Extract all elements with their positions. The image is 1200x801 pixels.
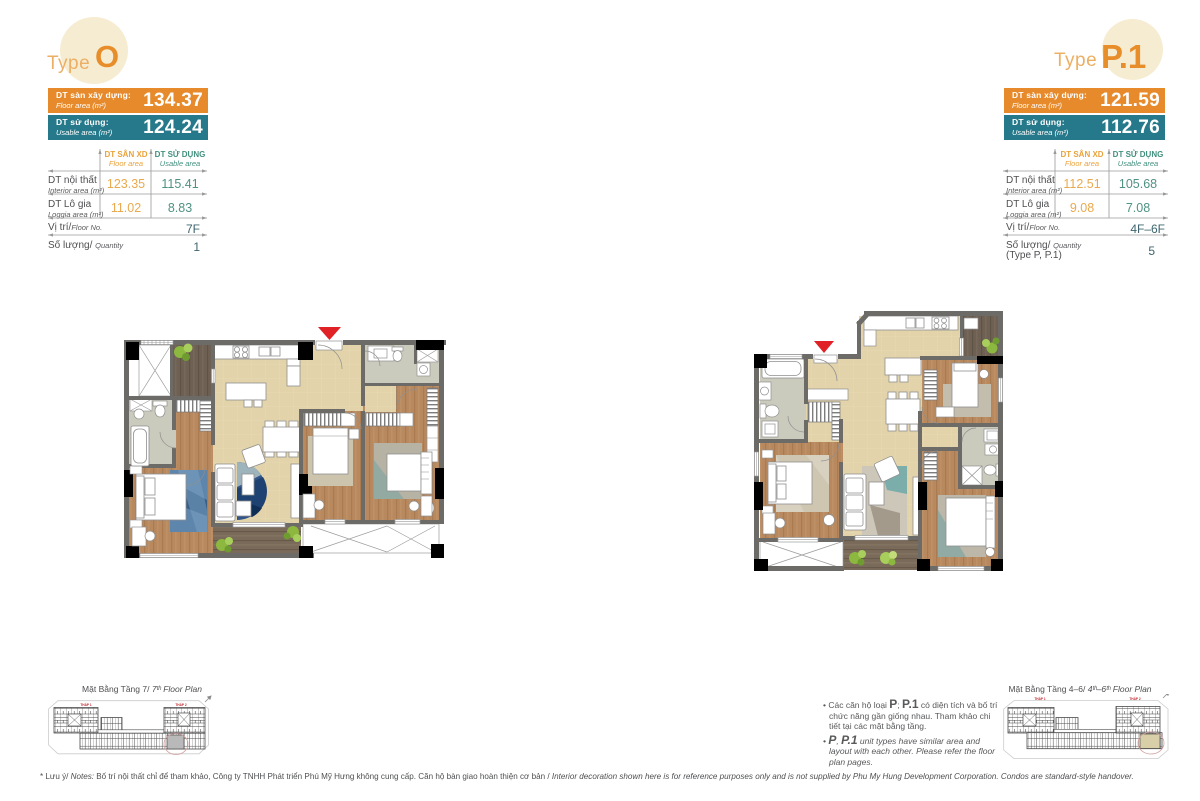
svg-text:THÁP 2: THÁP 2 xyxy=(175,702,187,707)
svg-text:THÁP 1: THÁP 1 xyxy=(1034,696,1046,701)
svg-text:THÁP 2: THÁP 2 xyxy=(1129,696,1141,701)
